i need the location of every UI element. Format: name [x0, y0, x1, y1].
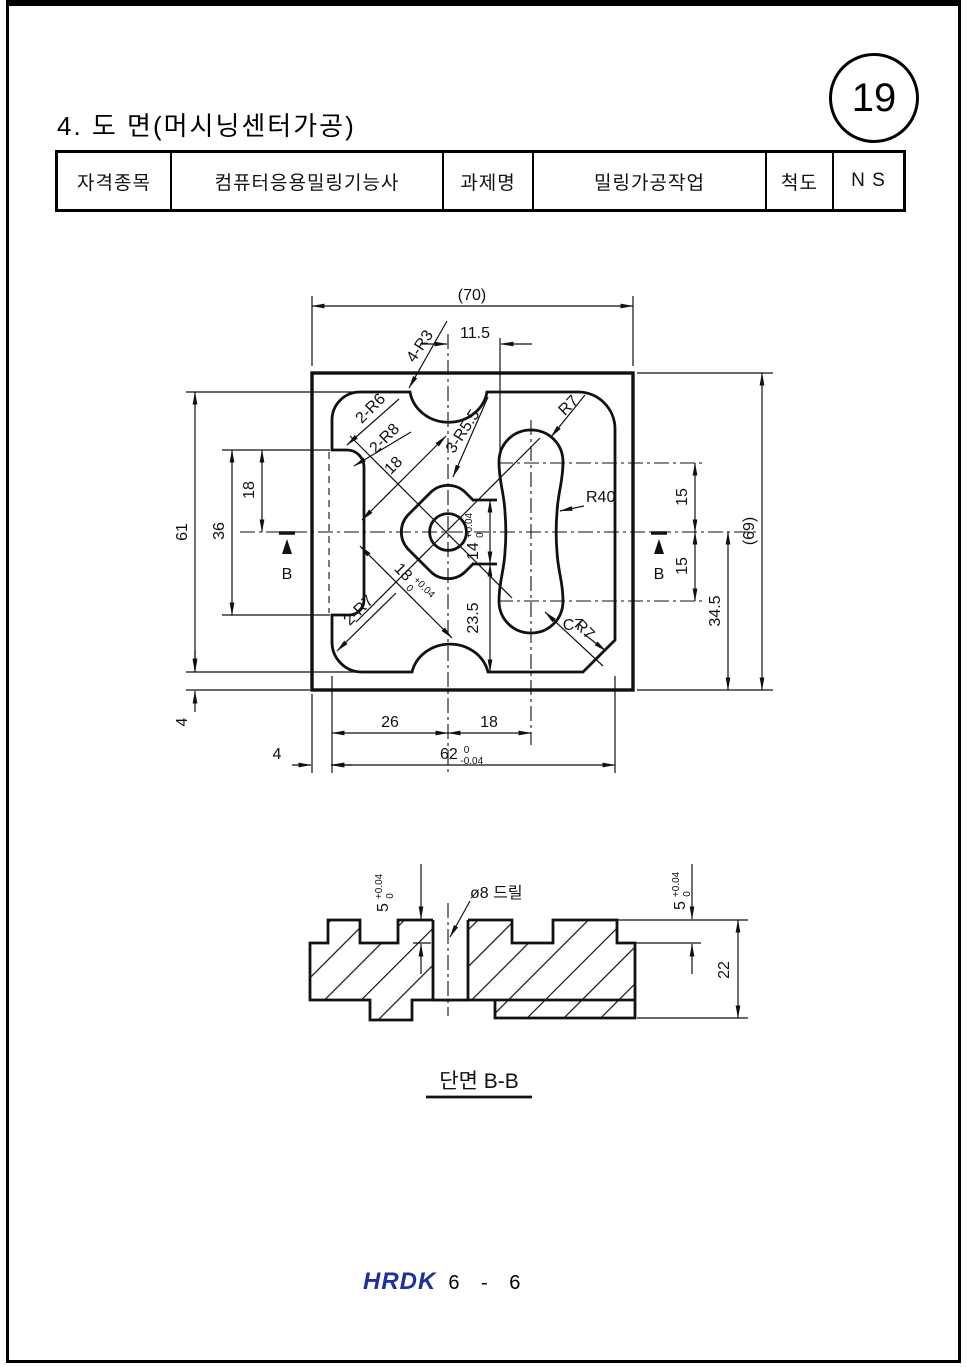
main-view: B B (70) 11.5 4-R3 2-R6 2-R8 3-R5.5 18 1… — [174, 287, 773, 776]
section-label: 단면 B-B — [439, 1070, 518, 1093]
dim-5-left: 5+0.040 — [374, 873, 396, 912]
dim-2-r6: 2-R6 — [353, 390, 390, 427]
centerlines — [240, 334, 757, 776]
dim-18-tol: 18+0.040 — [388, 559, 437, 608]
hrdk-logo: HRDK — [363, 1268, 436, 1296]
dim-4-left: 4 — [174, 717, 191, 726]
dim-width-ref: (70) — [458, 287, 486, 304]
dim-34-5: 34.5 — [707, 595, 724, 626]
section-mark-right-label: B — [654, 566, 665, 583]
dim-r40: R40 — [586, 489, 615, 506]
technical-drawing: B B (70) 11.5 4-R3 2-R6 2-R8 3-R5.5 18 1… — [0, 0, 966, 1200]
dim-62-tol: 620-0.04 — [440, 745, 484, 767]
document-page: 19 4. 도 면(머시닝센터가공) 자격종목 컴퓨터응용밀링기능사 과제명 밀… — [0, 0, 966, 1367]
dim-r7-top: R7 — [556, 393, 583, 420]
dim-61: 61 — [174, 523, 191, 541]
dim-23-5: 23.5 — [465, 602, 482, 633]
dim-15-lower: 15 — [674, 557, 691, 575]
dim-3-r55: 3-R5.5 — [443, 407, 483, 457]
dim-11-5: 11.5 — [460, 325, 490, 342]
dim-5-right: 5+0.040 — [671, 871, 693, 910]
dim-14-tol: 14+0.040 — [464, 512, 486, 560]
dim-2-r8: 2-R8 — [367, 420, 404, 457]
section-body — [310, 903, 635, 1020]
dim-15-upper: 15 — [674, 488, 691, 506]
dim-18-bottom: 18 — [480, 714, 498, 731]
section-view: 5+0.040 5+0.040 22 ø8 드릴 단면 B-B — [310, 864, 748, 1097]
dim-36: 36 — [211, 522, 228, 540]
dim-22: 22 — [716, 961, 733, 979]
dim-4-bottom: 4 — [273, 746, 282, 763]
dim-18-diag: 18 — [382, 453, 407, 478]
dim-26: 26 — [381, 714, 399, 731]
section-mark-left-label: B — [282, 566, 293, 583]
footer-page-info: 6 - 6 — [448, 1272, 528, 1295]
footer: HRDK 6 - 6 — [363, 1268, 528, 1296]
dim-2-r7: 2-R7 — [341, 592, 378, 629]
drill-note: ø8 드릴 — [470, 884, 523, 902]
dim-height-ref: (69) — [741, 517, 758, 545]
dim-18-left: 18 — [241, 481, 258, 499]
